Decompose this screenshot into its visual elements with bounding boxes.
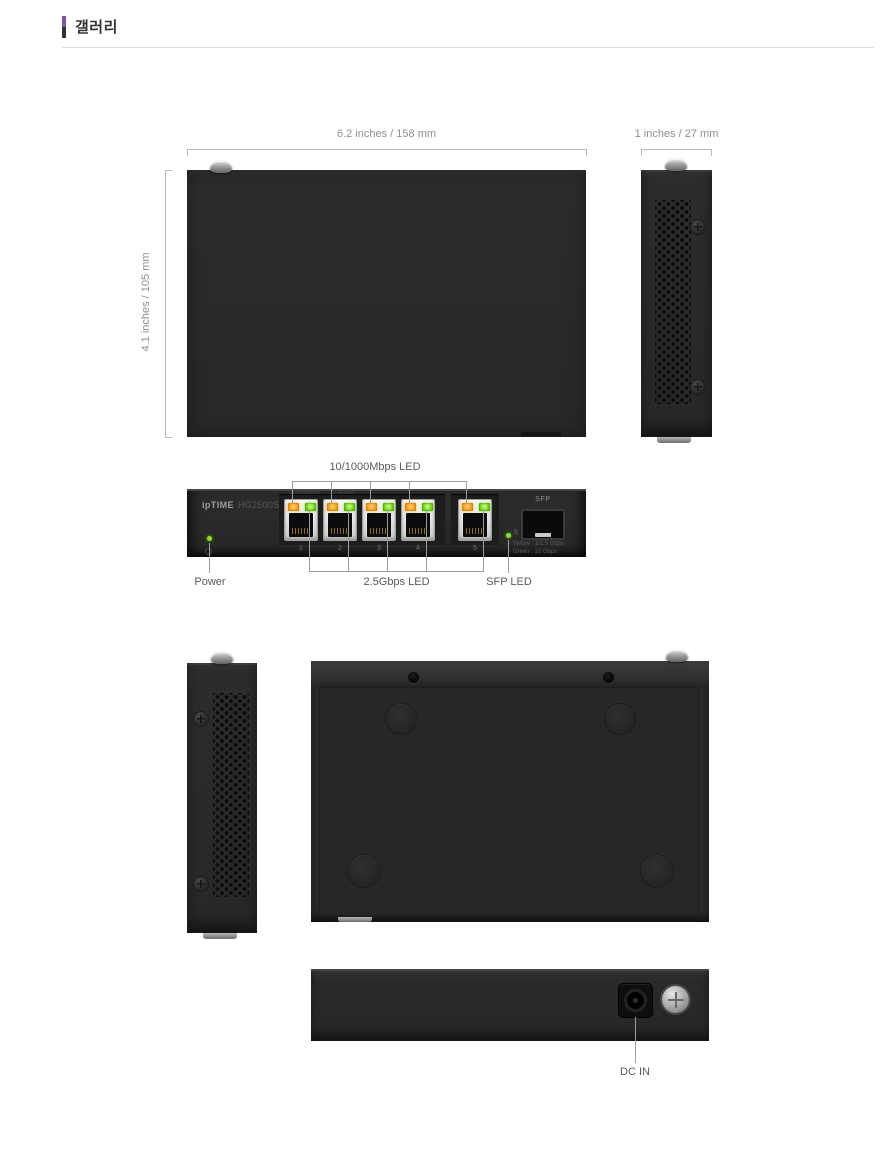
rubber-foot (338, 917, 372, 922)
led-10-1000mbps (405, 503, 416, 511)
port-number-5: 5 (473, 545, 477, 552)
case-screw (194, 712, 208, 726)
depth-dimension-label: 1 inches / 27 mm (630, 128, 723, 140)
dc-in-label: DC IN (605, 1066, 665, 1078)
speed-led-label: 2.5Gbps LED (306, 576, 487, 588)
rubber-foot (641, 855, 673, 887)
rubber-foot (605, 704, 635, 734)
rear-foot (521, 432, 561, 437)
rj45-jack (367, 513, 391, 537)
led-10-1000mbps (327, 503, 338, 511)
power-led (207, 536, 212, 541)
case-screw (194, 877, 208, 891)
led-2-5gbps (479, 503, 490, 511)
led-2-5gbps (305, 503, 316, 511)
right-side-view (641, 170, 712, 437)
bottom-rear-edge (311, 661, 709, 687)
led-2-5gbps (422, 503, 433, 511)
port-number-4: 4 (416, 545, 420, 552)
thumb-screw (666, 650, 688, 662)
thumb-screw (211, 652, 233, 664)
height-bracket (166, 171, 173, 438)
rj45-port-2 (323, 499, 357, 541)
rj45-port-3 (362, 499, 396, 541)
rj45-jack (328, 513, 352, 537)
case-screw (691, 220, 705, 234)
led-legend: - Yellow : 1/2.5 Gbps - Green : 10 Gbps (509, 540, 564, 556)
rj45-port-5 (458, 499, 492, 541)
case-screw (691, 380, 705, 394)
vent-grid (655, 200, 691, 404)
led-2-5gbps (383, 503, 394, 511)
thumb-screw (665, 159, 687, 171)
width-bracket (188, 150, 587, 157)
thumb-screw (210, 161, 232, 173)
dc-power-jack (619, 984, 652, 1017)
power-label: Power (184, 576, 236, 588)
page-title: 갤러리 (75, 16, 118, 37)
top-view (187, 170, 586, 437)
led-legend-yellow: - Yellow : 1/2.5 Gbps (509, 540, 564, 548)
left-side-view (187, 663, 257, 933)
screw-hole (408, 672, 419, 683)
width-dimension-label: 6.2 inches / 158 mm (187, 128, 586, 140)
rj45-jack (463, 513, 487, 537)
uplink-led-label: 10/1000Mbps LED (275, 461, 475, 473)
brand-logo: ipTIME (202, 500, 234, 510)
front-view: ipTIME HG2500ST1 10/1000Mbps 2.5Gbps (187, 489, 586, 557)
led-10-1000mbps (288, 503, 299, 511)
ground-screw (662, 986, 689, 1013)
rubber-foot (348, 855, 380, 887)
rj45-port-4 (401, 499, 435, 541)
gallery-page: 갤러리 6.2 inches / 158 mm 4.1 inches / 105… (0, 0, 890, 1166)
sfp-led (506, 533, 511, 538)
port-number-1: 1 (299, 545, 303, 552)
rubber-foot (203, 933, 237, 939)
sfp-led-mark: S (514, 530, 518, 536)
sfp-led-label: SFP LED (478, 576, 540, 588)
led-10-1000mbps (462, 503, 473, 511)
led-10-1000mbps (366, 503, 377, 511)
bottom-view (311, 661, 709, 922)
header-divider (62, 47, 874, 48)
rj45-jack (289, 513, 313, 537)
accent-bar-dark (62, 27, 66, 38)
port-number-2: 2 (338, 545, 342, 552)
height-dimension-label: 4.1 inches / 105 mm (140, 236, 152, 368)
bottom-plate (319, 687, 699, 916)
accent-bar-purple (62, 16, 66, 27)
screw-hole (603, 672, 614, 683)
sfp-port-label: SFP (523, 496, 563, 503)
led-2-5gbps (344, 503, 355, 511)
vent-grid (213, 693, 249, 897)
rj45-jack (406, 513, 430, 537)
rj45-port-1 (284, 499, 318, 541)
rear-view (311, 969, 709, 1041)
port-number-3: 3 (377, 545, 381, 552)
depth-bracket (642, 150, 712, 157)
rubber-foot (386, 704, 416, 734)
header-accent-bar (62, 16, 66, 38)
brand-print: ipTIME HG2500ST1 (202, 500, 291, 510)
led-legend-green: - Green : 10 Gbps (509, 548, 564, 556)
sfp-port (521, 509, 565, 540)
power-symbol-icon (205, 548, 212, 555)
rubber-foot (657, 437, 691, 443)
